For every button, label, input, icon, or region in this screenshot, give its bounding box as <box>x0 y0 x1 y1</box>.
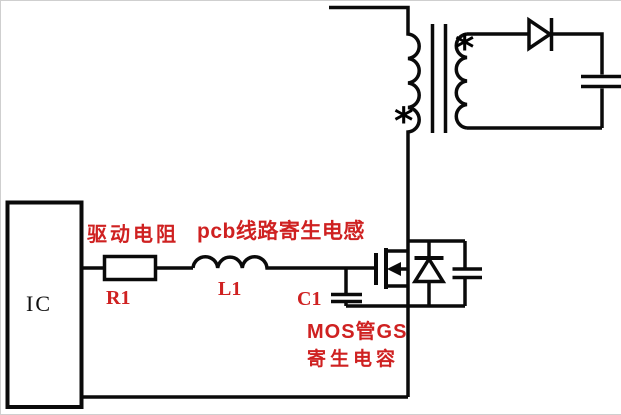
primary-polarity-mark-icon: * <box>394 100 413 143</box>
inductor-l1-designator: L1 <box>218 279 241 299</box>
secondary-top-wire-right <box>552 34 602 75</box>
output-diode-triangle <box>529 20 550 49</box>
transformer-core-lines <box>433 24 446 133</box>
capacitor-c1-designator: C1 <box>297 289 321 309</box>
circuit-schematic: IC 驱动电阻 R1 pcb线路寄生电感 L1 C1 MOS管GS 寄生电容 *… <box>0 0 621 415</box>
pcb-parasitic-inductance-label: pcb线路寄生电感 <box>197 221 365 242</box>
mos-gs-label-line1: MOS管GS <box>307 322 407 342</box>
ic-label: IC <box>26 293 52 315</box>
body-diode-triangle <box>415 259 443 282</box>
resistor-r1-designator: R1 <box>106 288 130 308</box>
inductor-l1-coil <box>193 257 374 268</box>
mosfet-body-arrow <box>387 262 401 276</box>
snubber-cap-plates <box>453 269 483 278</box>
drive-resistor-label: 驱动电阻 <box>87 225 179 245</box>
mos-gs-label-line2: 寄生电容 <box>307 350 399 369</box>
secondary-polarity-mark-icon: * <box>455 27 474 70</box>
capacitor-c1-plates <box>331 295 362 302</box>
resistor-r1-body <box>105 257 156 280</box>
output-capacitor-plates <box>581 77 621 87</box>
